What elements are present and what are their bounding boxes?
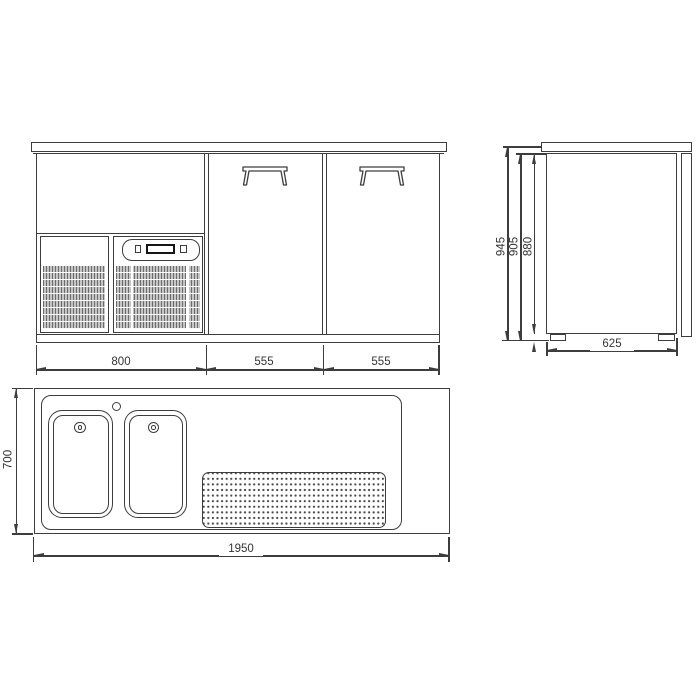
door-handle-icon [358,164,406,186]
dimension-label-depth: 625 [590,338,634,351]
worktop-side [541,142,692,152]
dimension-arrow [324,367,334,371]
dimension-arrow [518,331,522,341]
dimension-arrow [667,348,677,352]
dimension-arrow [36,367,46,371]
grille-separator [131,266,134,330]
vent-grille-left [43,266,105,330]
door-gap-line [322,154,323,334]
door-gap-line [208,154,209,334]
dimension-arrow [14,524,18,534]
dimension-label-length: 1950 [219,543,263,556]
extension-line [676,338,677,356]
door-gap-line [204,154,205,334]
dimension-line-top-depth [16,388,17,534]
technical-drawing-canvas: 800 555 555 945 905 880 [0,0,700,700]
dimension-label-height-under-worktop: 905 [509,225,522,269]
dimension-arrow [439,553,449,557]
control-button-left [135,245,142,254]
dimension-line-front [36,369,439,370]
dimension-arrow [14,388,18,398]
dimension-arrow [196,367,206,371]
drain-hole-right-center [151,425,156,430]
drain-hole-left-center [78,425,83,430]
foot-right [658,334,675,341]
dimension-label-left-section: 800 [99,356,143,369]
left-section-divider [37,233,204,234]
dimension-arrow [532,154,536,164]
dimension-arrow [34,553,44,557]
dimension-arrow [518,154,522,164]
grille-separator [186,266,189,330]
dimension-arrow [505,331,509,341]
control-button-right [180,245,187,254]
door-edge-strip [681,153,692,337]
dimension-arrow [505,147,509,157]
dimension-arrow [547,348,557,352]
plinth-line [37,334,439,335]
dimension-arrow [206,367,216,371]
dimension-label-right-door: 555 [359,356,403,369]
dimension-label-top-depth: 700 [3,438,16,482]
foot-left [550,334,567,341]
dimension-label-overall-height: 945 [495,225,508,269]
tap-hole [112,402,121,411]
drainer-perforated-area [202,472,386,528]
dimension-arrow [314,367,324,371]
dimension-label-cabinet-height: 880 [523,225,536,269]
door-handle-icon [241,164,289,186]
dimension-arrow [429,367,439,371]
door-gap-line [326,154,327,334]
worktop-front [31,142,447,152]
extension-line [33,537,34,562]
temperature-display [146,244,175,254]
feet-height-arrow [532,342,536,352]
dimension-label-left-door: 555 [242,356,286,369]
extension-line [448,537,449,562]
cabinet-side-body [546,153,677,334]
dimension-arrow [532,324,536,334]
